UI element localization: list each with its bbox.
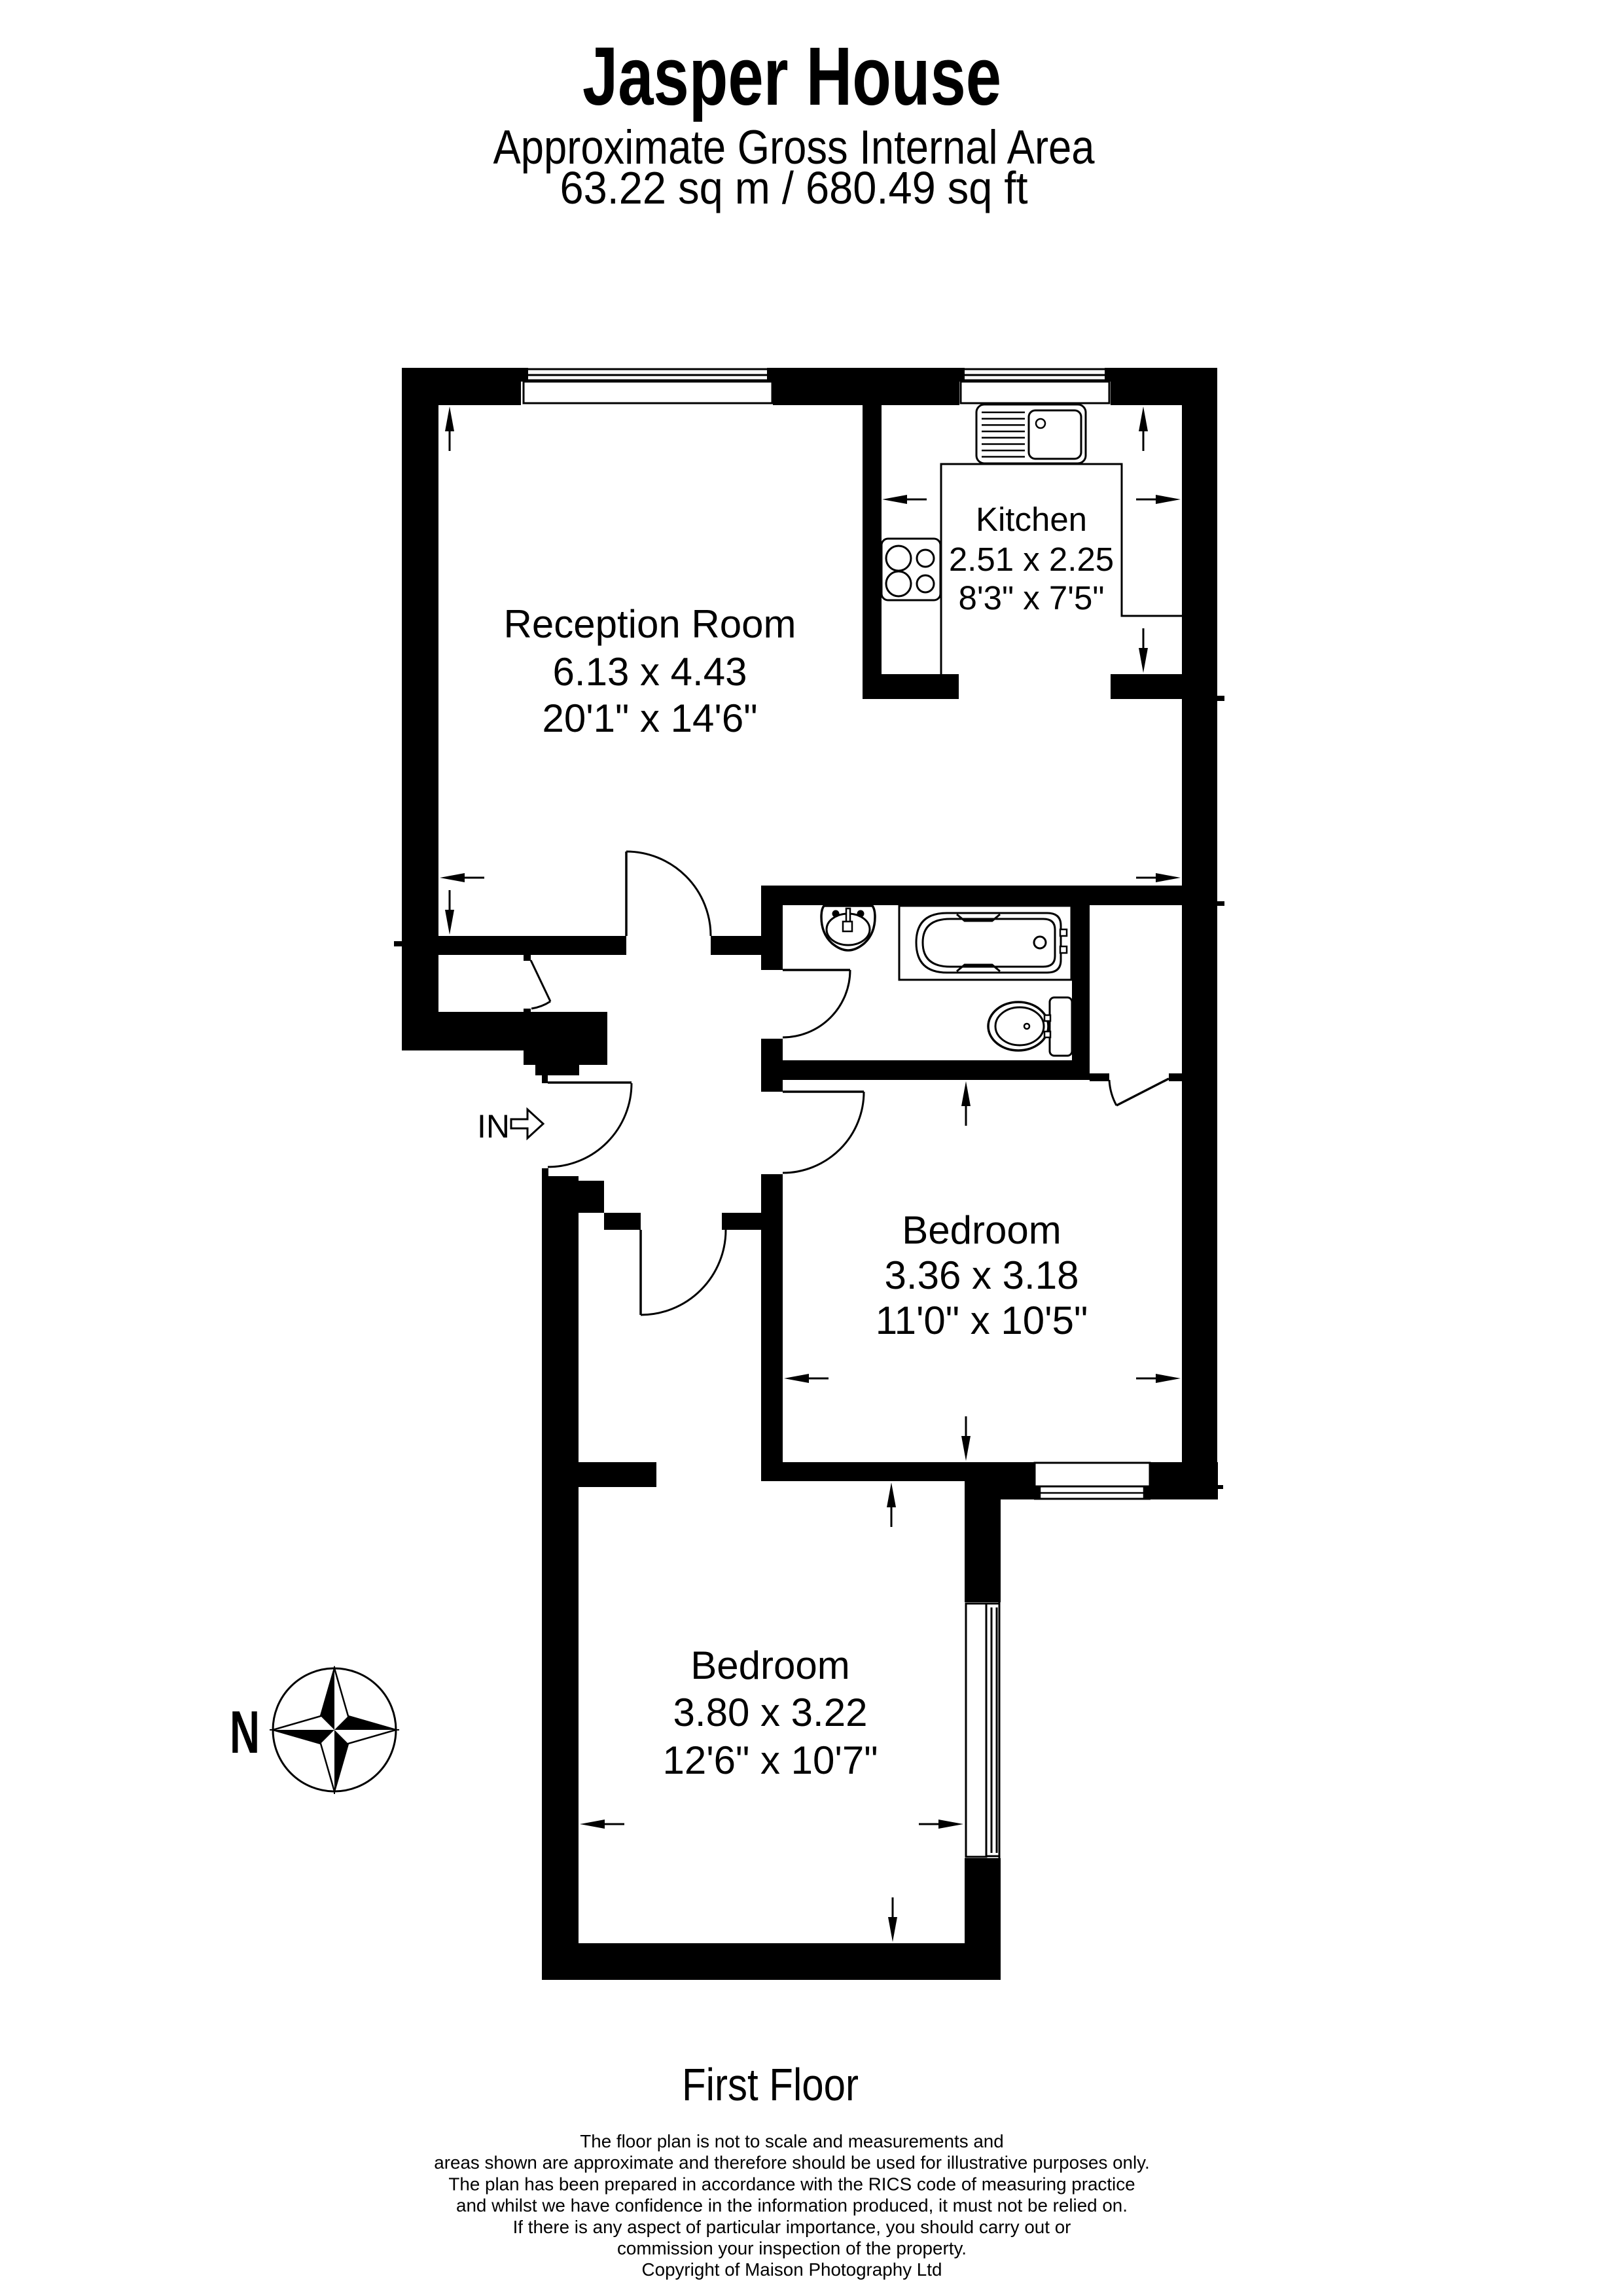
svg-text:IN: IN (477, 1108, 510, 1145)
svg-text:The plan has been prepared in: The plan has been prepared in accordance… (448, 2174, 1135, 2194)
svg-text:11'0" x 10'5": 11'0" x 10'5" (876, 1299, 1088, 1342)
svg-text:Bedroom: Bedroom (690, 1643, 849, 1687)
svg-text:and whilst we have confidence: and whilst we have confidence in the inf… (456, 2195, 1128, 2215)
svg-text:63.22 sq m / 680.49 sq ft: 63.22 sq m / 680.49 sq ft (560, 162, 1028, 213)
svg-text:20'1" x 14'6": 20'1" x 14'6" (542, 696, 757, 740)
svg-text:The floor plan is not to scale: The floor plan is not to scale and measu… (580, 2131, 1003, 2151)
svg-text:If there is any aspect of part: If there is any aspect of particular imp… (513, 2217, 1071, 2237)
svg-text:3.36 x 3.18: 3.36 x 3.18 (885, 1253, 1079, 1297)
svg-text:Copyright of Maison Photograph: Copyright of Maison Photography Ltd (642, 2259, 942, 2280)
svg-text:N: N (230, 1699, 260, 1766)
svg-text:2.51 x 2.25: 2.51 x 2.25 (949, 541, 1114, 578)
svg-text:6.13 x 4.43: 6.13 x 4.43 (553, 650, 747, 694)
svg-text:commission your inspection of: commission your inspection of the proper… (617, 2238, 967, 2259)
svg-text:Jasper House: Jasper House (582, 30, 1001, 122)
svg-text:First Floor: First Floor (682, 2059, 859, 2110)
svg-text:8'3" x 7'5": 8'3" x 7'5" (959, 579, 1105, 617)
svg-text:12'6" x 10'7": 12'6" x 10'7" (662, 1738, 878, 1782)
svg-text:3.80 x 3.22: 3.80 x 3.22 (673, 1691, 868, 1734)
svg-text:Kitchen: Kitchen (976, 501, 1087, 538)
svg-text:areas shown are approximate an: areas shown are approximate and therefor… (434, 2153, 1149, 2173)
svg-text:Bedroom: Bedroom (902, 1208, 1061, 1252)
svg-text:Reception Room: Reception Room (504, 602, 796, 646)
